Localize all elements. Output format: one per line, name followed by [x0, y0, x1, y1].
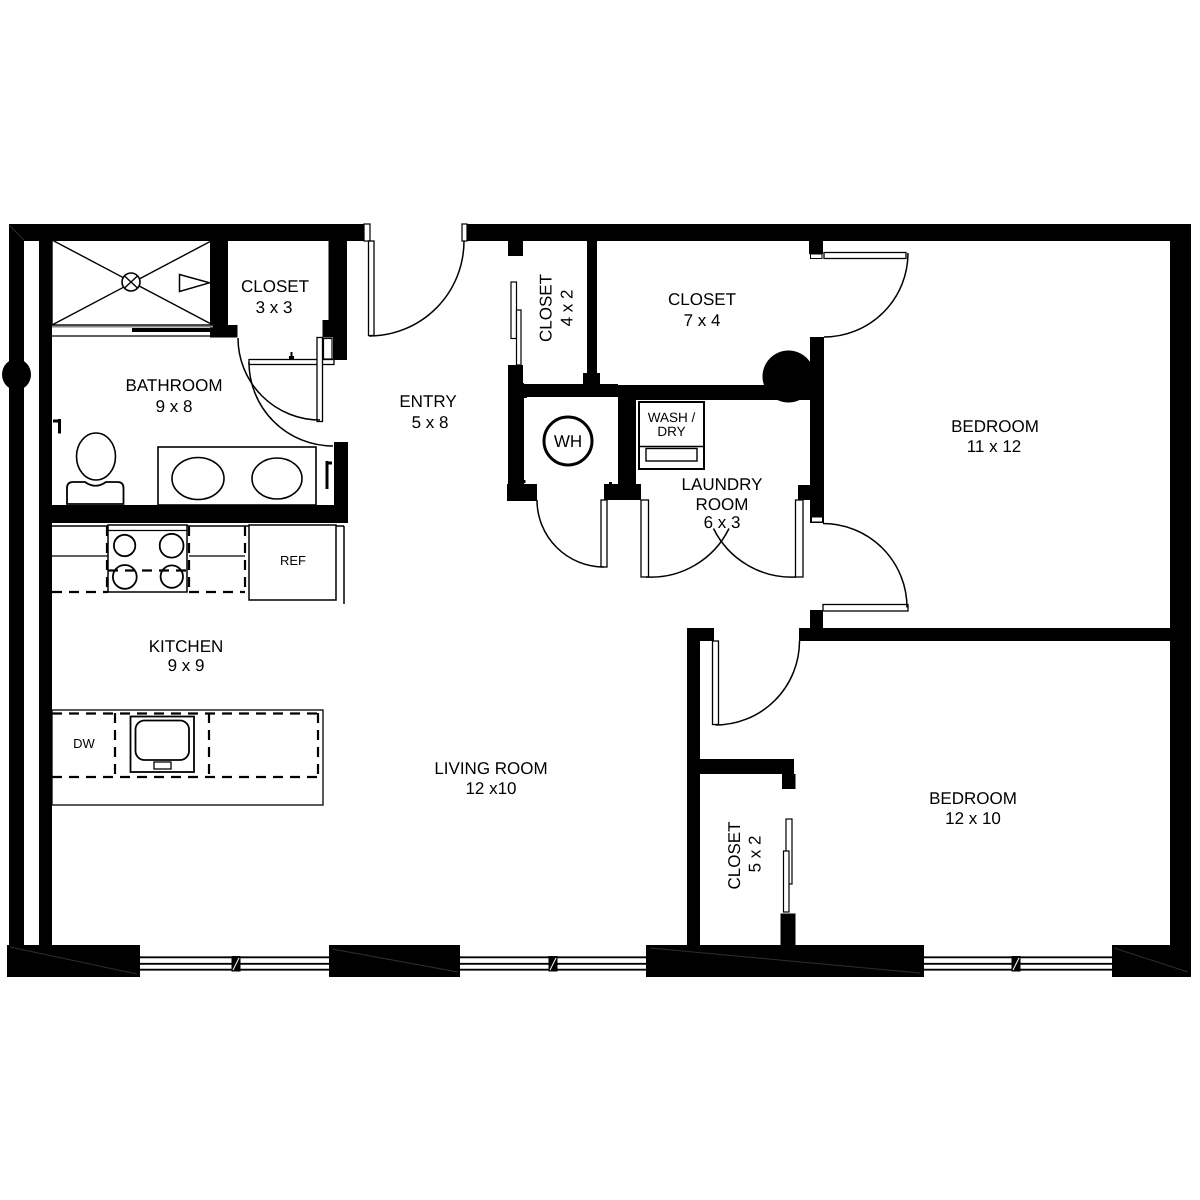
svg-text:3 x 3: 3 x 3: [256, 298, 293, 317]
svg-text:6 x 3: 6 x 3: [704, 513, 741, 532]
svg-text:BATHROOM: BATHROOM: [126, 376, 223, 395]
svg-text:9 x 9: 9 x 9: [168, 656, 205, 675]
svg-text:CLOSET: CLOSET: [668, 290, 736, 309]
svg-text:CLOSET: CLOSET: [725, 821, 744, 889]
svg-text:BEDROOM: BEDROOM: [951, 417, 1039, 436]
svg-text:CLOSET: CLOSET: [537, 274, 556, 342]
svg-text:DRY: DRY: [657, 424, 685, 439]
svg-text:5 x 8: 5 x 8: [412, 413, 449, 432]
svg-text:DW: DW: [73, 736, 95, 751]
svg-text:ENTRY: ENTRY: [399, 392, 456, 411]
svg-text:12 x10: 12 x10: [465, 779, 516, 798]
svg-text:REF: REF: [280, 553, 306, 568]
svg-text:LIVING ROOM: LIVING ROOM: [434, 759, 547, 778]
svg-text:7 x 4: 7 x 4: [684, 311, 721, 330]
svg-text:CLOSET: CLOSET: [241, 277, 309, 296]
svg-text:WASH /: WASH /: [648, 410, 696, 425]
svg-text:12 x 10: 12 x 10: [945, 809, 1001, 828]
svg-text:11 x 12: 11 x 12: [967, 437, 1022, 456]
svg-text:KITCHEN: KITCHEN: [149, 637, 224, 656]
svg-text:BEDROOM: BEDROOM: [929, 789, 1017, 808]
svg-text:WH: WH: [554, 432, 582, 451]
svg-text:ROOM: ROOM: [696, 495, 749, 514]
svg-text:LAUNDRY: LAUNDRY: [682, 475, 763, 494]
svg-text:5 x 2: 5 x 2: [746, 836, 765, 873]
svg-text:4 x 2: 4 x 2: [558, 290, 577, 327]
svg-text:9 x 8: 9 x 8: [156, 397, 193, 416]
